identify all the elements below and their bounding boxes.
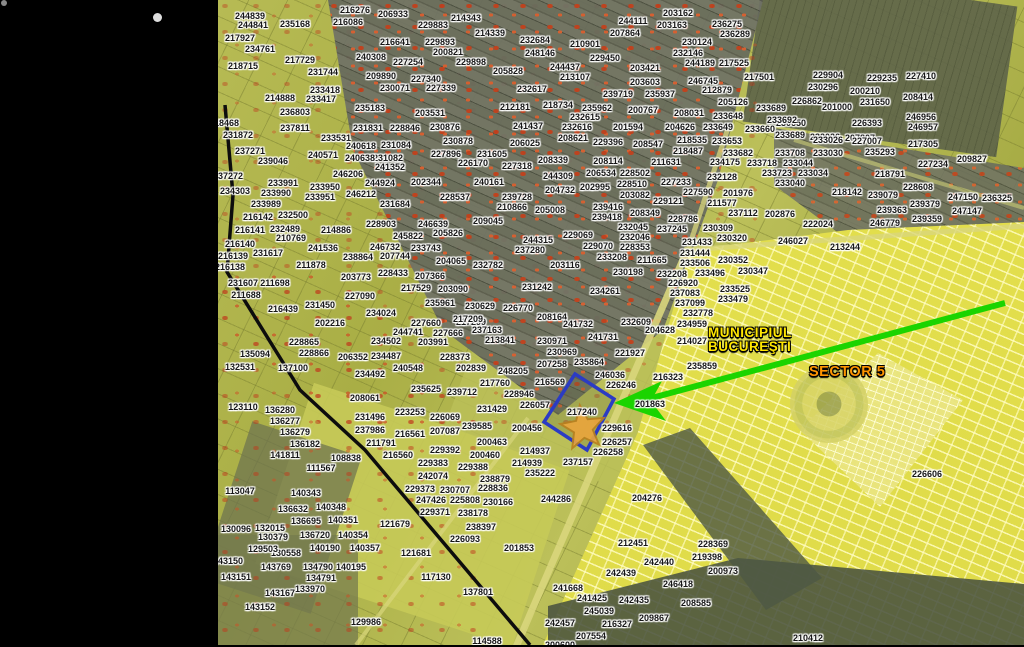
parcel-label: 234492	[355, 369, 385, 379]
parcel-label: 230969	[547, 347, 577, 357]
parcel-label: 234303	[220, 186, 250, 196]
parcel-label: 239712	[447, 387, 477, 397]
parcel-label: 216276	[340, 5, 370, 15]
parcel-label: 244924	[365, 178, 395, 188]
parcel-label: 136632	[278, 504, 308, 514]
parcel-label: 242439	[606, 568, 636, 578]
parcel-label: 237099	[675, 298, 705, 308]
parcel-label: 246206	[333, 169, 363, 179]
parcel-label: 208114	[593, 156, 623, 166]
parcel-label: 234502	[371, 336, 401, 346]
parcel-label: 201863	[635, 399, 665, 409]
parcel-label: 237271	[235, 146, 265, 156]
parcel-label: 143150	[218, 556, 243, 566]
parcel-label: 130379	[258, 532, 288, 542]
parcel-label: 208547	[633, 139, 663, 149]
parcel-label: 108838	[331, 453, 361, 463]
parcel-label: 233653	[712, 136, 742, 146]
parcel-label: 136277	[270, 416, 300, 426]
parcel-label: 244111	[618, 16, 647, 26]
parcel-label: 247150	[948, 192, 978, 202]
parcel-label: 232615	[570, 112, 600, 122]
parcel-label: 234959	[677, 319, 707, 329]
parcel-label: 233496	[695, 268, 725, 278]
parcel-label: 212181	[500, 102, 530, 112]
parcel-label: 233708	[775, 148, 805, 158]
parcel-label: 235183	[355, 103, 385, 113]
parcel-label: 229904	[813, 70, 843, 80]
parcel-label: 234024	[366, 308, 396, 318]
parcel-label: 236803	[280, 107, 310, 117]
parcel-label: 245039	[584, 606, 614, 616]
parcel-label: 205126	[718, 97, 748, 107]
parcel-label: 216140	[225, 239, 255, 249]
parcel-label: 230971	[537, 336, 567, 346]
parcel-label: 231617	[253, 248, 283, 258]
parcel-label: 203603	[630, 77, 660, 87]
parcel-label: 216086	[333, 17, 363, 27]
parcel-label: 213244	[830, 242, 860, 252]
parcel-label: 232684	[520, 35, 550, 45]
parcel-label: 233506	[680, 258, 710, 268]
parcel-label: 211878	[296, 260, 326, 270]
parcel-label: 230166	[483, 497, 513, 507]
parcel-label: 228836	[478, 483, 508, 493]
parcel-label: 207554	[576, 631, 606, 641]
parcel-label: 226257	[602, 437, 632, 447]
parcel-label: 230198	[613, 267, 643, 277]
parcel-label: 117130	[421, 572, 451, 582]
parcel-label: 227233	[661, 177, 691, 187]
parcel-label: 129503	[248, 544, 278, 554]
parcel-label: 134791	[306, 573, 336, 583]
parcel-label: 239728	[502, 192, 532, 202]
parcel-label: 218734	[543, 100, 573, 110]
parcel-label: 239359	[912, 214, 942, 224]
parcel-label: 242074	[418, 471, 448, 481]
parcel-label: 217529	[401, 283, 431, 293]
parcel-label: 248205	[498, 366, 528, 376]
parcel-label: 233950	[310, 182, 340, 192]
parcel-label: 228846	[390, 123, 420, 133]
parcel-label: 229235	[867, 73, 897, 83]
parcel-labels-layer: 2448392448412351682162762160862069332298…	[218, 0, 1024, 645]
parcel-label: 229388	[458, 462, 488, 472]
parcel-label: 201853	[504, 543, 534, 553]
parcel-label: 211631	[651, 157, 681, 167]
parcel-label: 229373	[405, 484, 435, 494]
parcel-label: 226606	[912, 469, 942, 479]
parcel-label: 226246	[606, 380, 636, 390]
bullet-dot-icon	[153, 13, 162, 22]
parcel-label: 227339	[426, 83, 456, 93]
parcel-label: 218487	[673, 146, 703, 156]
parcel-label: 201000	[822, 102, 852, 112]
parcel-label: 136695	[291, 516, 321, 526]
parcel-label: 140357	[350, 543, 380, 553]
parcel-label: 233648	[713, 111, 743, 121]
parcel-label: 235625	[411, 384, 441, 394]
parcel-label: 241425	[577, 593, 607, 603]
parcel-label: 228608	[903, 182, 933, 192]
parcel-label: 233660	[745, 124, 775, 134]
parcel-label: 239079	[868, 190, 898, 200]
parcel-label: 217501	[744, 72, 774, 82]
parcel-label: 216439	[268, 304, 298, 314]
parcel-label: 242435	[619, 595, 649, 605]
sector-5-label: SECTOR 5	[809, 364, 885, 380]
parcel-label: 207864	[610, 28, 640, 38]
parcel-label: 233723	[762, 168, 792, 178]
parcel-label: 227007	[852, 136, 882, 146]
parcel-label: 231496	[355, 412, 385, 422]
parcel-label: 226770	[503, 303, 533, 313]
parcel-label: 200463	[477, 437, 507, 447]
parcel-label: 216141	[235, 225, 265, 235]
parcel-label: 228865	[289, 337, 319, 347]
parcel-label: 232045	[618, 222, 648, 232]
parcel-label: 203773	[341, 272, 371, 282]
parcel-label: 210866	[497, 202, 527, 212]
parcel-label: 133970	[295, 584, 325, 594]
parcel-label: 211791	[366, 438, 396, 448]
parcel-label: 200460	[470, 450, 500, 460]
parcel-label: 244189	[685, 58, 715, 68]
parcel-label: 229616	[602, 423, 632, 433]
parcel-label: 216569	[535, 377, 565, 387]
parcel-label: 140351	[328, 515, 358, 525]
parcel-label: 229371	[420, 507, 450, 517]
parcel-label: 237272	[218, 171, 243, 181]
municipality-label: MUNICIPIUL BUCUREŞTI	[708, 326, 792, 354]
parcel-label: 227410	[906, 71, 936, 81]
parcel-label: 238178	[458, 508, 488, 518]
parcel-label: 206352	[338, 352, 368, 362]
parcel-label: 242457	[545, 618, 575, 628]
parcel-label: 233743	[411, 243, 441, 253]
parcel-label: 234175	[710, 157, 740, 167]
parcel-label: 227896	[431, 149, 461, 159]
parcel-label: 237083	[670, 288, 700, 298]
parcel-label: 235961	[425, 298, 455, 308]
parcel-label: 228433	[378, 268, 408, 278]
parcel-label: 241731	[588, 332, 618, 342]
parcel-label: 245822	[393, 231, 423, 241]
parcel-label: 208061	[350, 393, 380, 403]
parcel-label: 206933	[378, 9, 408, 19]
parcel-label: 233026	[813, 135, 843, 145]
parcel-label: 231872	[223, 130, 253, 140]
parcel-label: 228537	[440, 192, 470, 202]
parcel-label: 226170	[458, 158, 488, 168]
parcel-label: 203531	[415, 108, 445, 118]
parcel-label: 209890	[366, 71, 396, 81]
parcel-label: 214939	[512, 458, 542, 468]
parcel-label: 231242	[522, 282, 552, 292]
parcel-label: 214886	[321, 225, 351, 235]
parcel-label: 232128	[707, 172, 737, 182]
parcel-label: 226069	[430, 412, 460, 422]
parcel-label: 143151	[221, 572, 251, 582]
parcel-label: 205008	[535, 205, 565, 215]
parcel-label: 210769	[276, 233, 306, 243]
parcel-label: 140343	[291, 488, 321, 498]
parcel-label: 216139	[218, 251, 248, 261]
parcel-label: 113047	[225, 486, 255, 496]
parcel-label: 228946	[504, 389, 534, 399]
parcel-label: 240618	[346, 141, 376, 151]
parcel-label: 140348	[316, 502, 346, 512]
parcel-label: 246957	[908, 122, 938, 132]
parcel-label: 240638	[345, 153, 375, 163]
parcel-label: 216323	[653, 372, 683, 382]
parcel-label: 136182	[290, 439, 320, 449]
parcel-label: 214888	[265, 93, 295, 103]
parcel-label: 230876	[430, 122, 460, 132]
parcel-label: 204065	[436, 256, 466, 266]
parcel-label: 218142	[832, 187, 862, 197]
parcel-label: 226920	[668, 278, 698, 288]
parcel-label: 202876	[765, 209, 795, 219]
parcel-label: 136280	[265, 405, 295, 415]
parcel-label: 240571	[308, 150, 338, 160]
parcel-label: 233034	[798, 168, 828, 178]
parcel-label: 203991	[418, 337, 448, 347]
parcel-label: 231650	[860, 97, 890, 107]
parcel-label: 121679	[380, 519, 410, 529]
parcel-label: 240161	[474, 177, 504, 187]
parcel-label: 228786	[668, 214, 698, 224]
parcel-label: 233479	[718, 294, 748, 304]
parcel-label: 140190	[310, 543, 340, 553]
parcel-label: 230296	[808, 82, 838, 92]
parcel-label: 200821	[433, 47, 463, 57]
parcel-label: 227590	[683, 187, 713, 197]
parcel-label: 228903	[366, 219, 396, 229]
parcel-label: 216138	[218, 262, 245, 272]
parcel-label: 233649	[703, 122, 733, 132]
parcel-label: 229392	[430, 445, 460, 455]
parcel-label: 232046	[620, 232, 650, 242]
parcel-label: 240548	[393, 363, 423, 373]
parcel-label: 132531	[225, 362, 255, 372]
parcel-label: 203082	[620, 190, 650, 200]
parcel-label: 229070	[583, 241, 613, 251]
parcel-label: 231450	[305, 300, 335, 310]
parcel-label: 233989	[251, 199, 281, 209]
parcel-label: 238864	[343, 252, 373, 262]
parcel-label: 204628	[645, 325, 675, 335]
parcel-label: 206534	[586, 168, 616, 178]
screenshot-root: { "window": {"background": "#000000"}, "…	[0, 0, 1024, 647]
parcel-label: 218791	[875, 169, 905, 179]
parcel-label: 207366	[415, 271, 445, 281]
parcel-label: 216327	[602, 619, 632, 629]
parcel-label: 203090	[438, 284, 468, 294]
parcel-label: 140354	[338, 530, 368, 540]
parcel-label: 247147	[952, 206, 982, 216]
parcel-label: 230309	[703, 223, 733, 233]
parcel-label: 201594	[613, 122, 643, 132]
parcel-label: 207087	[430, 426, 460, 436]
parcel-label: 233990	[261, 188, 291, 198]
parcel-label: 217927	[225, 33, 255, 43]
parcel-label: 210901	[570, 39, 600, 49]
parcel-label: 207744	[380, 251, 410, 261]
parcel-label: 235168	[280, 19, 310, 29]
parcel-label: 216142	[243, 212, 273, 222]
parcel-label: 239585	[462, 421, 492, 431]
parcel-label: 200973	[708, 566, 738, 576]
parcel-label: 203162	[663, 8, 693, 18]
parcel-label: 230352	[718, 255, 748, 265]
parcel-label: 239363	[877, 205, 907, 215]
parcel-label: 217305	[908, 139, 938, 149]
parcel-label: 203163	[657, 20, 687, 30]
parcel-label: 233689	[756, 103, 786, 113]
parcel-label: 233525	[720, 284, 750, 294]
parcel-label: 211665	[637, 255, 667, 265]
parcel-label: 230071	[380, 83, 410, 93]
parcel-label: 241352	[375, 162, 405, 172]
parcel-label: 233030	[813, 148, 843, 158]
parcel-label: 237112	[728, 208, 758, 218]
parcel-label: 208585	[681, 598, 711, 608]
parcel-label: 111567	[306, 463, 335, 473]
parcel-label: 226258	[593, 447, 623, 457]
parcel-label: 214343	[451, 13, 481, 23]
parcel-label: 207258	[537, 359, 567, 369]
parcel-label: 208621	[558, 133, 588, 143]
parcel-label: 200210	[850, 86, 880, 96]
parcel-label: 208349	[630, 208, 660, 218]
parcel-label: 231744	[308, 67, 338, 77]
parcel-label: 236325	[982, 193, 1012, 203]
parcel-label: 232782	[473, 260, 503, 270]
parcel-label: 227318	[502, 161, 532, 171]
parcel-label: 237811	[280, 123, 310, 133]
parcel-label: 242440	[644, 557, 674, 567]
parcel-label: 130096	[221, 524, 251, 534]
parcel-label: 200767	[628, 105, 658, 115]
parcel-label: 233991	[268, 178, 298, 188]
parcel-label: 213841	[485, 335, 515, 345]
parcel-label: 211577	[707, 198, 737, 208]
parcel-label: 239416	[593, 202, 623, 212]
parcel-label: 233689	[775, 130, 805, 140]
parcel-label: 226093	[450, 534, 480, 544]
parcel-label: 235937	[645, 89, 675, 99]
parcel-label: 233417	[306, 94, 336, 104]
parcel-label: 212879	[702, 85, 732, 95]
parcel-label: 235222	[525, 468, 555, 478]
parcel-label: 244286	[541, 494, 571, 504]
parcel-label: 216561	[395, 429, 425, 439]
parcel-label: 228373	[440, 352, 470, 362]
parcel-label: 219398	[692, 552, 722, 562]
parcel-label: 203421	[630, 63, 660, 73]
parcel-label: 123110	[228, 402, 258, 412]
parcel-label: 239418	[592, 212, 622, 222]
parcel-label: 236275	[712, 19, 742, 29]
parcel-label: 201976	[723, 188, 753, 198]
parcel-label: 132015	[255, 523, 285, 533]
parcel-label: 244437	[550, 62, 580, 72]
parcel-label: 134790	[303, 562, 333, 572]
parcel-label: 216641	[380, 37, 410, 47]
parcel-label: 230878	[443, 136, 473, 146]
parcel-label: 121681	[401, 548, 431, 558]
parcel-label: 209045	[473, 216, 503, 226]
parcel-label: 238397	[466, 522, 496, 532]
parcel-label: 244315	[523, 235, 553, 245]
parcel-label: 140195	[336, 562, 366, 572]
parcel-label: 246036	[595, 370, 625, 380]
parcel-label: 218535	[677, 135, 707, 145]
parcel-label: 246418	[663, 579, 693, 589]
parcel-label: 229396	[593, 137, 623, 147]
parcel-label: 136720	[300, 530, 330, 540]
parcel-label: 234261	[590, 286, 620, 296]
parcel-label: 217760	[480, 378, 510, 388]
parcel-label: 229069	[563, 230, 593, 240]
parcel-label: 202839	[456, 363, 486, 373]
parcel-label: 216560	[383, 450, 413, 460]
parcel-label: 129986	[351, 617, 381, 627]
parcel-label: 209827	[957, 154, 987, 164]
parcel-label: 222024	[803, 219, 833, 229]
parcel-label: 246027	[778, 236, 808, 246]
parcel-label: 231831	[353, 123, 383, 133]
parcel-label: 232617	[517, 84, 547, 94]
map-viewport[interactable]: 2448392448412351682162762160862069332298…	[218, 0, 1024, 645]
parcel-label: 234761	[245, 44, 275, 54]
parcel-label: 246779	[870, 218, 900, 228]
parcel-label: 218468	[218, 118, 239, 128]
parcel-label: 214339	[475, 28, 505, 38]
parcel-label: 208414	[903, 92, 933, 102]
parcel-label: 232616	[562, 122, 592, 132]
parcel-label: 227254	[393, 57, 423, 67]
parcel-label: 237245	[657, 224, 687, 234]
parcel-label: 230320	[717, 233, 747, 243]
parcel-label: 236289	[720, 29, 750, 39]
parcel-label: 229450	[590, 53, 620, 63]
parcel-label: 228353	[620, 242, 650, 252]
municipality-label-line2: BUCUREŞTI	[708, 340, 792, 354]
parcel-label: 231429	[477, 404, 507, 414]
parcel-label: 235859	[687, 361, 717, 371]
parcel-label: 234487	[371, 351, 401, 361]
municipality-label-line1: MUNICIPIUL	[708, 326, 792, 340]
parcel-label: 211698	[260, 278, 290, 288]
parcel-label: 214937	[520, 446, 550, 456]
parcel-label: 214027	[677, 336, 707, 346]
parcel-label: 209867	[639, 613, 669, 623]
parcel-label: 114588	[472, 636, 502, 645]
parcel-label: 217525	[719, 58, 749, 68]
parcel-label: 217209	[453, 314, 483, 324]
parcel-label: 143167	[265, 588, 295, 598]
parcel-label: 230629	[465, 301, 495, 311]
parcel-label: 141811	[270, 450, 300, 460]
parcel-label: 230347	[738, 266, 768, 276]
parcel-label: 217729	[285, 55, 315, 65]
parcel-label: 225808	[450, 495, 480, 505]
parcel-label: 202344	[411, 177, 441, 187]
corner-dot-icon	[1, 0, 7, 6]
parcel-label: 233208	[597, 252, 627, 262]
